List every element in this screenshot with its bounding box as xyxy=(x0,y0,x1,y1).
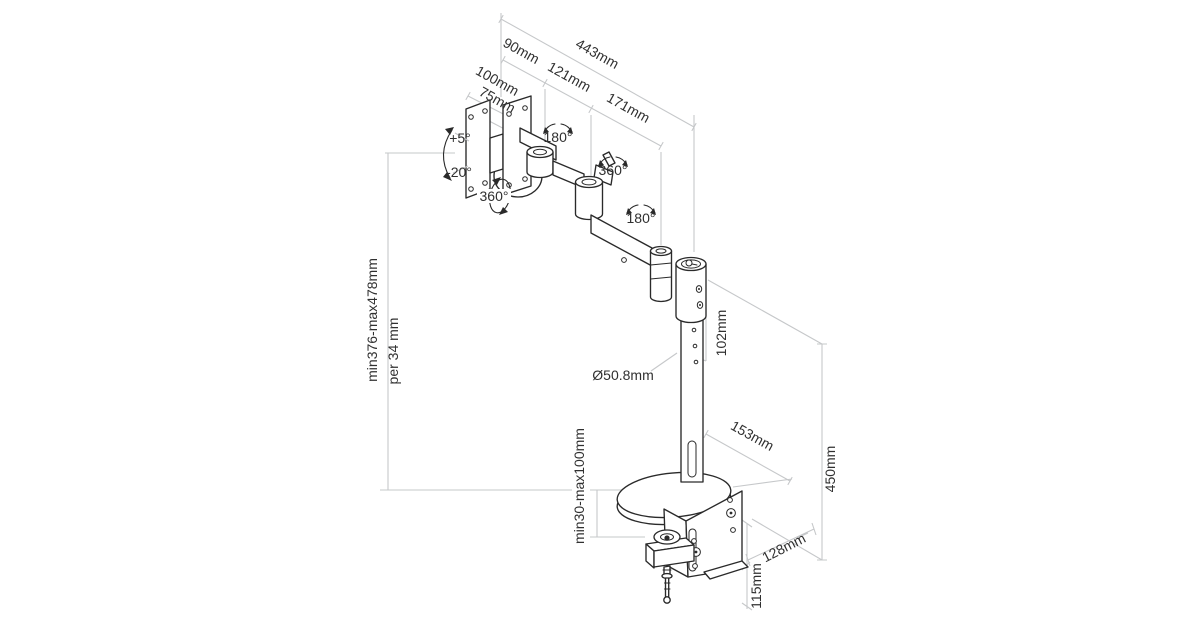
technical-drawing-page: 443mm 90mm 121mm 171mm 100mm 75mm +5° -2… xyxy=(0,0,1200,630)
pole-diameter-label: Ø50.8mm xyxy=(592,367,653,383)
clamp-screw-tip xyxy=(664,597,670,603)
column-height-label: 450mm xyxy=(822,446,838,493)
rotate-joint1-label: 180° xyxy=(544,129,573,145)
vesa-hole xyxy=(469,187,474,192)
arm-joint-2 xyxy=(576,177,603,220)
dim-segment3-label: 171mm xyxy=(604,89,653,126)
pole-hole xyxy=(694,360,698,364)
swivel-arrow-bottom xyxy=(499,207,508,215)
leader-pole-diameter xyxy=(651,353,677,371)
clamp-hole xyxy=(693,564,698,569)
clamp-pad-hub xyxy=(664,535,669,540)
vesa-hole xyxy=(469,115,474,120)
joint3-body xyxy=(651,251,672,302)
dim-line-height-range xyxy=(380,153,572,490)
swivel-plate-label: 360° xyxy=(480,188,509,204)
pole-hole xyxy=(692,328,696,332)
pole-collar xyxy=(676,258,706,323)
pole xyxy=(681,318,703,482)
plate-connector xyxy=(490,134,503,173)
clamp-capacity-label: min30-max100mm xyxy=(571,428,587,544)
height-step-label: per 34 mm xyxy=(385,318,401,385)
collar-set-screw-dot xyxy=(699,304,701,306)
dim-segment2-label: 121mm xyxy=(545,58,594,95)
joint2-cap xyxy=(576,177,603,188)
joint3-cap xyxy=(651,247,672,256)
clamp-screw-dot xyxy=(695,551,698,554)
tilt-up-label: +5° xyxy=(449,130,471,146)
clamp-screw-dot xyxy=(730,512,733,515)
clamp-height-label: 115mm xyxy=(748,563,764,609)
clamp-hole xyxy=(728,498,733,503)
vesa-hole xyxy=(483,109,488,114)
pole-top-section-label: 102mm xyxy=(713,310,729,357)
vesa-hole xyxy=(523,177,528,182)
clamp-depth-label: 128mm xyxy=(759,530,808,565)
joint1-cap xyxy=(527,147,553,158)
monitor-arm-technical-drawing: 443mm 90mm 121mm 171mm 100mm 75mm +5° -2… xyxy=(0,0,1200,630)
collar-body xyxy=(676,264,706,323)
clamp-hole xyxy=(731,528,736,533)
dim-overall-width-label: 443mm xyxy=(573,35,622,72)
arm-screw xyxy=(622,258,627,263)
collar-keyhole xyxy=(686,260,692,266)
height-range-label: min376-max478mm xyxy=(364,258,380,382)
base-depth-label: 153mm xyxy=(728,417,777,454)
pole-hole xyxy=(693,344,697,348)
arm-joint-1 xyxy=(527,147,553,178)
rotate-pole-label: 180° xyxy=(627,210,656,226)
tilt-down-label: -20° xyxy=(446,164,472,180)
pole-slot xyxy=(688,441,696,477)
clamp-screw-rod xyxy=(666,578,669,597)
rotate-joint2-label: 360° xyxy=(599,162,628,178)
vesa-hole xyxy=(483,181,488,186)
collar-set-screw-dot xyxy=(698,288,700,290)
dimension-labels: 443mm 90mm 121mm 171mm 100mm 75mm +5° -2… xyxy=(364,34,838,609)
arm-joint-3 xyxy=(651,247,672,302)
vesa-hole xyxy=(523,106,528,111)
